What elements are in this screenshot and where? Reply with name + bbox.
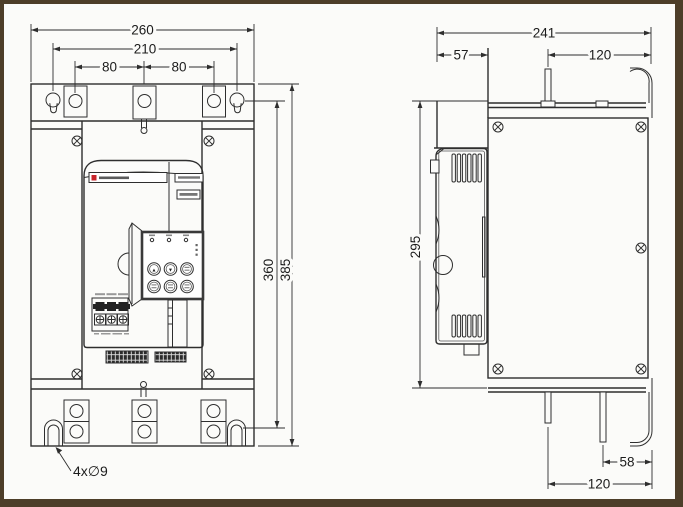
brand-label [89, 173, 167, 183]
dim-label: 4x∅9 [73, 463, 108, 479]
dim-label: 241 [533, 26, 556, 41]
dim-label: 295 [408, 236, 423, 259]
paper-background [4, 4, 675, 499]
dim-label: 360 [261, 259, 276, 282]
dim-label: 58 [619, 455, 634, 470]
dim-label: 80 [171, 60, 186, 75]
up-button[interactable]: ▲ [148, 263, 161, 276]
down-arrow-icon: ▼ [168, 267, 173, 273]
softstarter-label [175, 174, 203, 183]
brand-logo-icon [92, 175, 97, 181]
dim-label: 120 [588, 477, 611, 492]
up-arrow-icon: ▲ [152, 267, 157, 273]
dim-label: 385 [278, 259, 293, 282]
io-terminal-strips [106, 351, 186, 363]
down-button[interactable]: ▼ [164, 263, 177, 276]
dim-label: 80 [102, 60, 117, 75]
dimension-drawing: ▲ ▼ [0, 0, 683, 507]
dim-label: 210 [134, 42, 157, 57]
keypad-panel: ▲ ▼ [142, 232, 203, 299]
dim-label: 120 [589, 48, 612, 63]
dim-label: 260 [131, 23, 154, 38]
model-label [177, 190, 200, 199]
dim-label: 57 [453, 48, 468, 63]
screenshot-frame: ▲ ▼ [0, 0, 683, 507]
